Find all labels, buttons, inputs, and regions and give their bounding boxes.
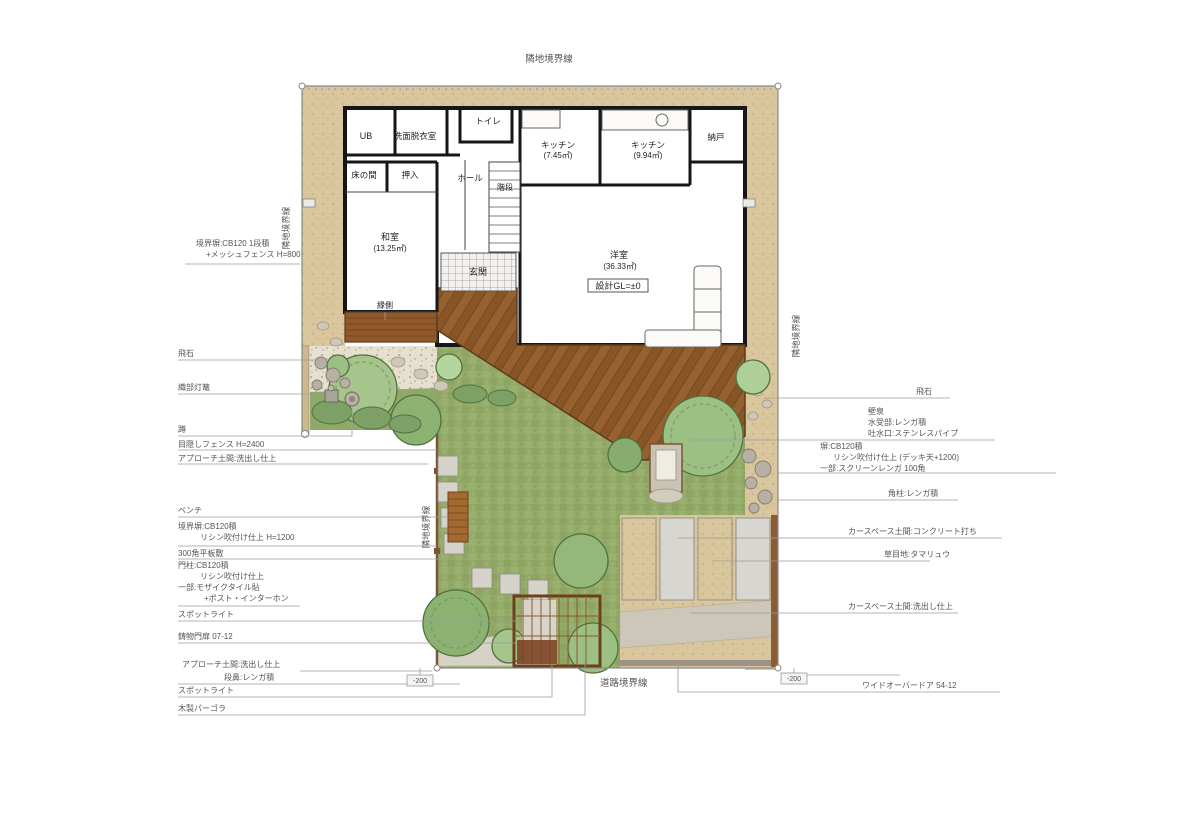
label-fountain-1: 壁泉 <box>868 406 884 416</box>
label-gatepost-2: リシン吹付け仕上 <box>200 571 264 581</box>
label-boundary-left: 隣地境界線 <box>281 206 291 249</box>
label-room-stairs: 階段 <box>497 182 513 192</box>
label-plates: 300角平板敷 <box>178 548 223 558</box>
label-room-kitchen-b-area: (9.94㎡) <box>634 151 663 160</box>
label-fountain-2: 水受部:レンガ積 <box>868 417 926 427</box>
label-gatepost-4: +ポスト・インターホン <box>204 594 289 603</box>
section-marker-right <box>743 199 755 207</box>
label-room-laundry: 洗面脱衣室 <box>394 131 437 141</box>
label-boundary-middle: 隣地境界線 <box>421 505 431 548</box>
label-boundary-wall-top-2: +メッシュフェンス H=800 <box>206 250 301 259</box>
label-boundary-wall-top-1: 境界塀:CB120 1段積 <box>196 238 269 248</box>
label-design-gl: 設計GL=±0 <box>595 280 640 291</box>
label-carspace-concrete: カースペース土間:コンクリート打ち <box>848 526 977 536</box>
label-room-kitchen-a: キッチン <box>541 140 575 150</box>
label-room-kitchen-a-area: (7.45㎡) <box>544 151 573 160</box>
label-bench: ベンチ <box>178 506 202 515</box>
label-room-tatami: 和室 <box>381 231 399 242</box>
label-gatepost-3: 一部:モザイクタイル貼 <box>178 582 260 592</box>
label-pergola: 木製パーゴラ <box>178 703 226 713</box>
label-room-living: 洋室 <box>610 249 628 260</box>
label-corner-post: 角柱:レンガ積 <box>888 488 938 498</box>
label-spotlight-2: スポットライト <box>178 686 234 695</box>
bench-graphic <box>448 492 468 542</box>
label-carspace-washout: カースペース土間:洗出し仕上 <box>848 601 953 611</box>
label-wall-right-3: 一部:スクリーンレンガ 100角 <box>820 463 925 473</box>
label-screen-fence: 目隠しフェンス H=2400 <box>178 439 265 449</box>
label-tsukubai: 蹲 <box>178 424 186 434</box>
label-room-storeroom: 納戸 <box>707 132 724 142</box>
site-plan-drawing: 隣地境界線 隣地境界線 隣地境界線 隣地境界線 道路境界線 UB 洗面脱衣室 ト… <box>0 0 1200 818</box>
label-approach-bottom-2: 段鼻:レンガ積 <box>224 672 274 682</box>
label-room-toilet: トイレ <box>475 116 501 126</box>
garden-plan-page: 隣地境界線 隣地境界線 隣地境界線 隣地境界線 道路境界線 UB 洗面脱衣室 ト… <box>0 0 1200 818</box>
stairs-graphic <box>489 162 520 252</box>
label-gatepost-1: 門柱:CB120積 <box>178 560 229 570</box>
label-boundary-wall-mid-1: 境界塀:CB120積 <box>178 521 237 531</box>
label-room-veranda: 縁側 <box>377 300 393 310</box>
cast-iron-gate <box>517 640 557 664</box>
label-boundary-top: 隣地境界線 <box>525 53 573 65</box>
label-fountain-3: 吐水口:ステンレスパイプ <box>868 428 958 438</box>
label-spotlight-1: スポットライト <box>178 610 234 619</box>
section-marker-left <box>303 199 315 207</box>
label-tobiishi-left: 飛石 <box>178 349 194 358</box>
label-boundary-wall-mid-2: リシン吹付け仕上 H=1200 <box>200 532 295 542</box>
label-grass-joint: 草目地:タマリュウ <box>884 549 950 559</box>
label-boundary-right: 隣地境界線 <box>791 314 801 357</box>
label-level-right: -200 <box>787 676 801 683</box>
label-room-hall: ホール <box>457 173 483 183</box>
label-gate: 鋳物門扉 07-12 <box>178 631 233 641</box>
label-room-tokonoma: 床の間 <box>351 170 377 180</box>
label-boundary-road: 道路境界線 <box>600 677 648 689</box>
label-level-left: -200 <box>413 678 427 685</box>
label-overdoor: ワイドオーバードア 54-12 <box>862 681 957 690</box>
label-wall-right-2: リシン吹付け仕上 (デッキ天+1200) <box>833 452 959 462</box>
label-room-tatami-area: (13.25㎡) <box>373 244 407 253</box>
label-tobiishi-right: 飛石 <box>916 387 932 396</box>
label-wall-right-1: 塀:CB120積 <box>820 441 863 451</box>
wall-fountain <box>649 444 683 503</box>
label-room-entrance: 玄関 <box>469 266 487 277</box>
tsukubai-basin <box>345 392 359 406</box>
sofa <box>694 266 721 336</box>
label-room-living-area: (36.33㎡) <box>603 262 637 271</box>
label-room-kitchen-b: キッチン <box>631 140 665 150</box>
label-approach-top: アプローチ土間:洗出し仕上 <box>178 453 276 463</box>
label-approach-bottom-1: アプローチ土間:洗出し仕上 <box>182 659 280 669</box>
label-lantern: 織部灯篭 <box>178 382 210 392</box>
label-room-ub: UB <box>360 131 373 141</box>
label-room-closet: 押入 <box>401 170 419 180</box>
